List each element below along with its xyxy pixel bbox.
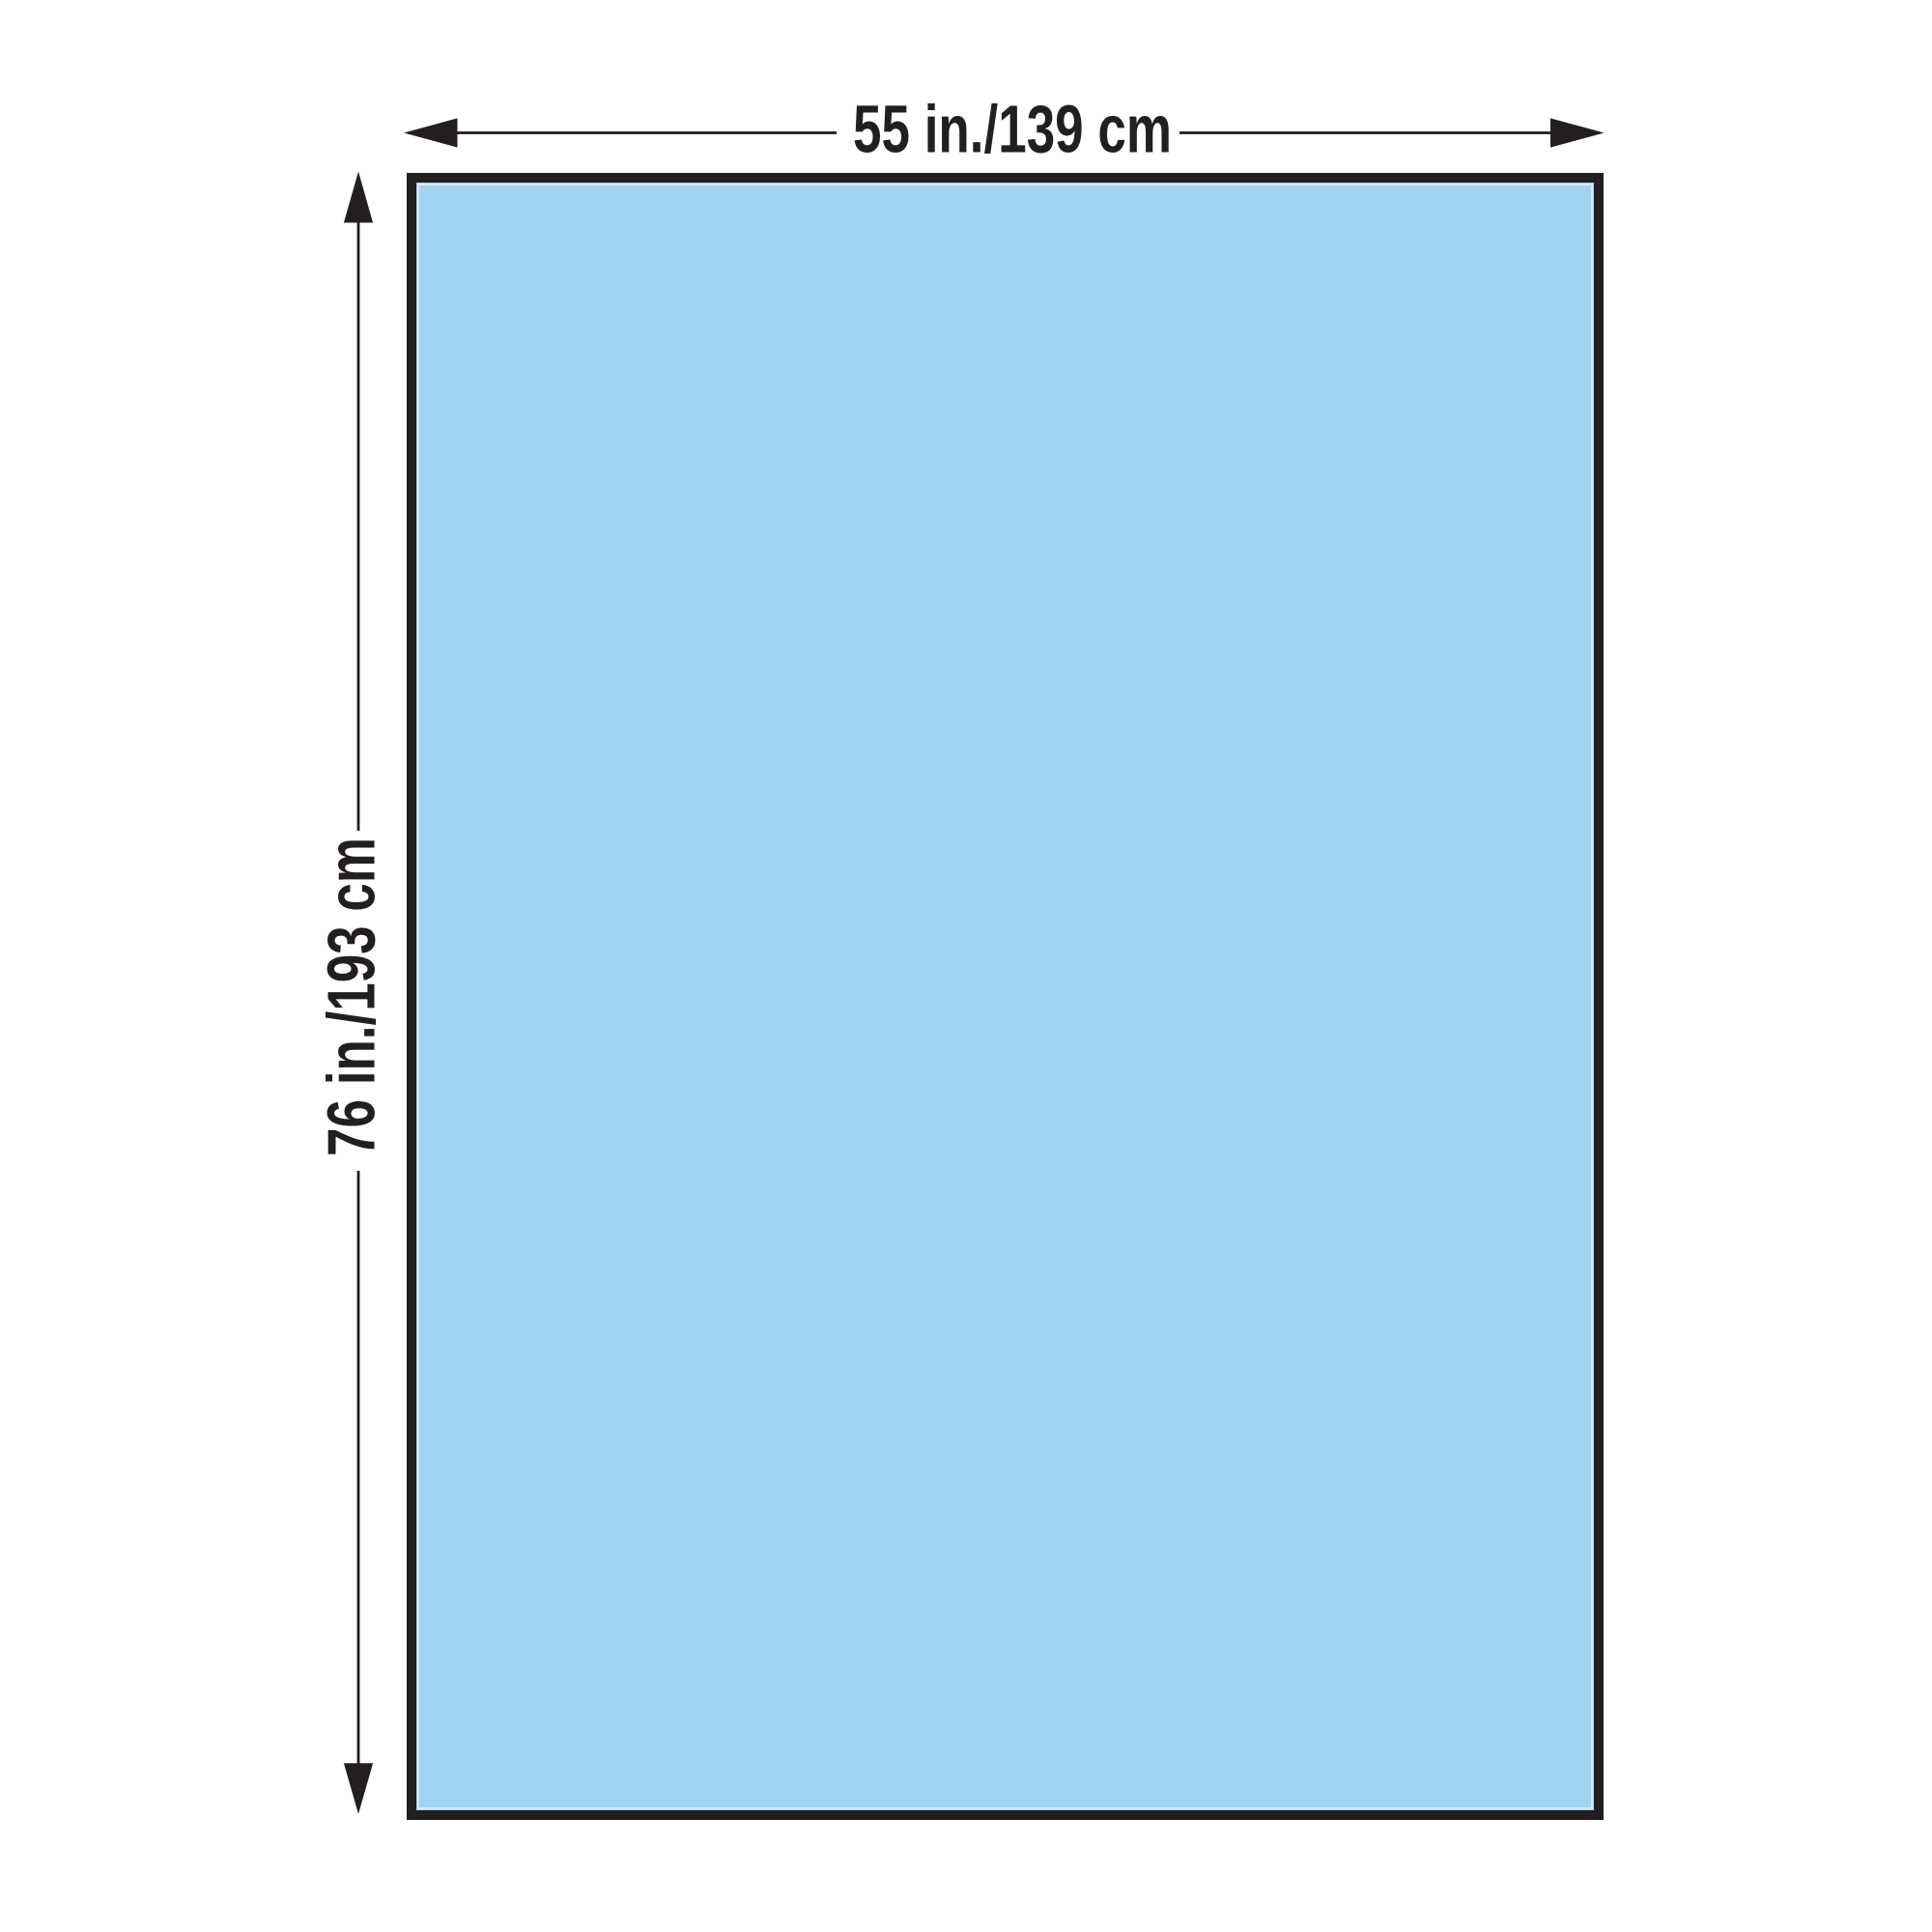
svg-text:76 in./193 cm: 76 in./193 cm xyxy=(314,838,389,1156)
svg-text:55 in./139 cm: 55 in./139 cm xyxy=(853,92,1172,167)
